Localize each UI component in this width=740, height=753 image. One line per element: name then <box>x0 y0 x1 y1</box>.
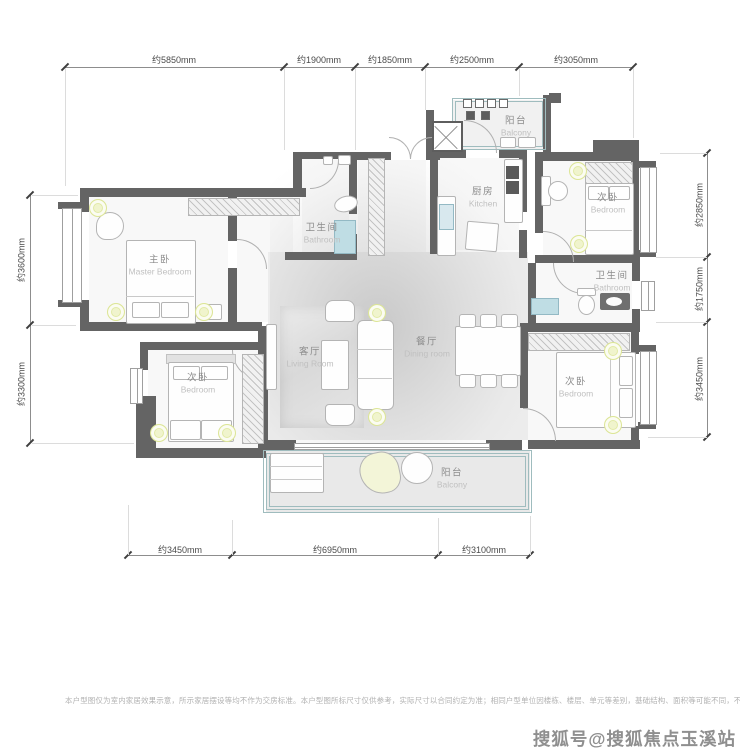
washer-icon <box>481 111 490 120</box>
bathtub <box>531 298 559 315</box>
wall <box>519 230 527 258</box>
dim-label: 约1850mm <box>368 53 412 66</box>
extension-line <box>519 68 520 96</box>
extension-line <box>633 68 634 138</box>
tv-cabinet <box>266 324 277 390</box>
toilet-icon <box>578 295 595 315</box>
watermark: 搜狐号@搜狐焦点玉溪站 <box>533 726 736 751</box>
room-label-balcony-top: 阳台Balcony <box>501 115 531 138</box>
washer-icon <box>487 99 496 108</box>
floor-plan-page: 主卧Master Bedroom 卫生间Bathroom 厨房Kitchen 阳… <box>0 0 740 753</box>
dining-chair <box>459 374 476 388</box>
bay-window <box>640 167 657 253</box>
extension-line <box>32 325 76 326</box>
stove-icon <box>506 166 519 179</box>
bathroom-window <box>641 281 655 311</box>
entry-door-arc <box>410 137 432 159</box>
washer-icon <box>499 99 508 108</box>
wall <box>486 440 522 450</box>
dining-chair <box>501 374 518 388</box>
extension-line <box>232 520 233 555</box>
wall <box>528 263 536 325</box>
dining-chair <box>480 314 497 328</box>
washer-icon <box>466 111 475 120</box>
dim-label: 约2850mm <box>693 183 706 227</box>
dimension-line-left <box>30 195 31 443</box>
room-label-bathroom2: 卫生间Bathroom <box>594 270 631 293</box>
room-label-bedroom-br: 次卧Bedroom <box>559 376 594 399</box>
stool <box>548 181 568 201</box>
room-label-kitchen: 厨房Kitchen <box>469 186 497 209</box>
dim-label: 约1750mm <box>693 267 706 311</box>
armchair <box>325 300 355 322</box>
dining-table <box>455 326 521 376</box>
bay-window <box>62 208 82 303</box>
quilt <box>170 420 201 440</box>
dining-chair <box>480 374 497 388</box>
fridge <box>465 221 499 253</box>
extension-line <box>425 68 426 110</box>
dim-label: 约2500mm <box>450 53 494 66</box>
ceiling-light-icon <box>368 408 386 426</box>
dim-label: 约3050mm <box>554 53 598 66</box>
bed-fold-line <box>126 296 194 297</box>
storage-shelf <box>270 453 324 493</box>
dim-label: 约3300mm <box>15 362 28 406</box>
dining-chair <box>501 314 518 328</box>
ceiling-light-icon <box>150 424 168 442</box>
balcony-sliding-door <box>294 443 490 450</box>
dining-chair <box>459 314 476 328</box>
washer-icon <box>475 99 484 108</box>
bed-fold-line <box>585 230 632 231</box>
pillow <box>161 302 189 318</box>
dim-label: 约5850mm <box>152 53 196 66</box>
entry-door-arc <box>389 137 411 159</box>
ceiling-light-icon <box>569 162 587 180</box>
extension-line <box>65 68 66 186</box>
wall <box>140 342 262 350</box>
ceiling-light-icon <box>195 303 213 321</box>
shelf-line <box>270 466 322 467</box>
room-label-bedroom-bl: 次卧Bedroom <box>181 372 216 395</box>
wall <box>140 342 148 370</box>
extension-line <box>128 505 129 555</box>
wall <box>593 140 639 154</box>
pillow <box>132 302 160 318</box>
sofa <box>357 320 394 410</box>
room-label-master: 主卧Master Bedroom <box>129 254 192 277</box>
ceiling-light-icon <box>368 304 386 322</box>
sofa-cushion-line <box>357 349 392 350</box>
sofa-cushion-line <box>357 378 392 379</box>
wall <box>84 188 306 197</box>
room-label-dining: 餐厅Dining room <box>404 336 450 359</box>
dim-label: 约6950mm <box>313 543 357 556</box>
wardrobe <box>188 198 300 216</box>
ceiling-light-icon <box>604 342 622 360</box>
wall <box>632 263 640 281</box>
ceiling-light-icon <box>89 199 107 217</box>
extension-line <box>32 195 78 196</box>
wall <box>136 396 156 450</box>
ceiling-light-icon <box>604 416 622 434</box>
wardrobe <box>242 354 264 444</box>
armchair <box>325 404 355 426</box>
extension-line <box>648 437 707 438</box>
round-table <box>401 452 433 484</box>
extension-line <box>32 443 134 444</box>
dim-label: 约3100mm <box>462 543 506 556</box>
extension-line <box>530 516 531 555</box>
extension-line <box>660 153 707 154</box>
stove-icon <box>506 181 519 194</box>
dim-label: 约3450mm <box>158 543 202 556</box>
pillow <box>619 356 633 386</box>
dim-label: 约3600mm <box>15 238 28 282</box>
wall <box>520 323 640 332</box>
room-label-bedroom-tr: 次卧Bedroom <box>591 192 626 215</box>
dim-label: 约3450mm <box>693 357 706 401</box>
room-label-bathroom1: 卫生间Bathroom <box>304 222 341 245</box>
dimension-line-top <box>65 67 633 68</box>
wall <box>520 332 528 408</box>
disclaimer-text: 本户型图仅为室内家居效果示意，所示家居摆设等均不作为交房标准。本户型图所标尺寸仅… <box>65 695 680 706</box>
shelf-line <box>270 479 322 480</box>
ceiling-light-icon <box>570 235 588 253</box>
wardrobe <box>585 162 633 184</box>
extension-line <box>438 518 439 555</box>
bed-fold-line <box>610 352 611 426</box>
shoe-cabinet <box>368 158 385 256</box>
room-label-living: 客厅Living Room <box>286 346 333 369</box>
bedroom-window <box>130 368 143 404</box>
washer-icon <box>463 99 472 108</box>
pillow <box>619 388 633 418</box>
toilet-cistern <box>338 155 351 165</box>
wall <box>549 93 561 103</box>
extension-line <box>656 257 707 258</box>
basin-icon <box>606 297 622 306</box>
dimension-line-right <box>707 153 708 437</box>
room-label-balcony-bottom: 阳台Balcony <box>437 467 467 490</box>
shaft-window-icon <box>432 121 463 152</box>
extension-line <box>355 68 356 150</box>
washbasin <box>323 156 333 165</box>
wall <box>528 440 640 449</box>
ceiling-light-icon <box>107 303 125 321</box>
wall <box>228 268 237 331</box>
ceiling-light-icon <box>218 424 236 442</box>
kitchen-sink <box>439 204 454 230</box>
extension-line <box>656 322 707 323</box>
dim-label: 约1900mm <box>297 53 341 66</box>
extension-line <box>284 68 285 150</box>
bay-window <box>640 351 657 425</box>
